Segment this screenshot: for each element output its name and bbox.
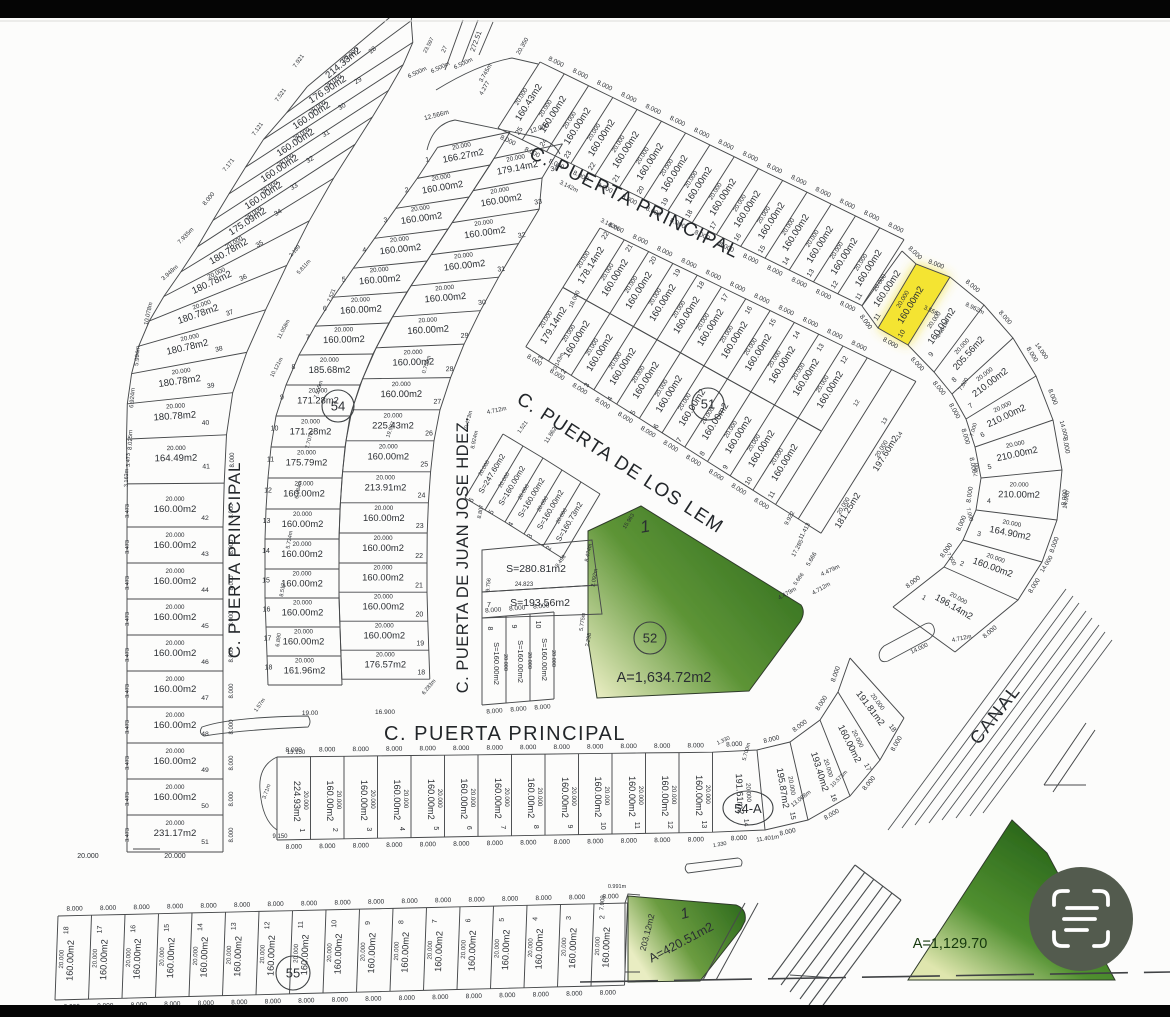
svg-text:8.000: 8.000 [229, 683, 235, 699]
svg-text:20.000: 20.000 [166, 532, 185, 539]
svg-text:20.000: 20.000 [527, 938, 535, 958]
svg-text:20.000: 20.000 [292, 943, 300, 963]
svg-text:8: 8 [292, 364, 296, 371]
svg-text:9: 9 [566, 824, 573, 828]
svg-text:9.756: 9.756 [485, 578, 492, 592]
svg-text:160.00m2: 160.00m2 [154, 576, 197, 587]
svg-text:20.000: 20.000 [164, 853, 186, 860]
svg-text:S=160.00m2: S=160.00m2 [540, 638, 549, 681]
svg-text:8.000: 8.000 [587, 838, 604, 845]
svg-text:3.473: 3.473 [126, 453, 132, 467]
svg-text:8.000: 8.000 [566, 990, 583, 997]
svg-text:5: 5 [432, 826, 439, 830]
svg-text:20.000: 20.000 [402, 789, 409, 808]
svg-text:20.000: 20.000 [469, 788, 476, 807]
svg-text:22: 22 [415, 553, 423, 560]
svg-text:20.000: 20.000 [166, 402, 186, 410]
svg-text:160.00m2: 160.00m2 [154, 792, 197, 803]
svg-text:20.000: 20.000 [393, 941, 401, 961]
svg-text:8: 8 [398, 920, 405, 924]
svg-text:20.000: 20.000 [379, 443, 398, 450]
svg-text:0.991m: 0.991m [608, 884, 627, 890]
svg-text:50: 50 [201, 803, 209, 810]
svg-text:20.000: 20.000 [58, 949, 66, 969]
svg-text:160.00m2: 160.00m2 [500, 929, 511, 970]
svg-text:42: 42 [201, 515, 209, 522]
svg-text:20.000: 20.000 [526, 652, 532, 669]
svg-text:39: 39 [207, 382, 216, 390]
svg-text:20.000: 20.000 [670, 785, 677, 804]
svg-text:8: 8 [486, 627, 493, 631]
svg-text:4: 4 [398, 827, 405, 831]
svg-text:3.473: 3.473 [125, 648, 131, 662]
svg-text:20.000: 20.000 [166, 604, 185, 611]
svg-text:20.000: 20.000 [301, 419, 320, 426]
svg-text:16: 16 [130, 925, 137, 933]
svg-text:13: 13 [231, 922, 238, 930]
svg-text:160.00m2: 160.00m2 [281, 578, 323, 589]
svg-text:20.000: 20.000 [550, 650, 556, 667]
svg-text:160.00m2: 160.00m2 [325, 780, 335, 821]
svg-text:20.000: 20.000 [369, 790, 376, 809]
svg-text:8.000: 8.000 [301, 900, 318, 907]
svg-text:7.000: 7.000 [973, 463, 980, 477]
svg-text:20.000: 20.000 [125, 947, 133, 967]
svg-text:160.00m2: 160.00m2 [627, 776, 637, 817]
svg-text:160.00m2: 160.00m2 [600, 927, 611, 968]
svg-text:47: 47 [201, 695, 209, 702]
svg-text:20.000: 20.000 [167, 445, 187, 452]
svg-text:8.000: 8.000 [486, 707, 503, 715]
svg-text:8.000: 8.000 [453, 745, 470, 752]
svg-text:8.000: 8.000 [401, 898, 418, 905]
svg-text:16: 16 [263, 607, 271, 614]
svg-text:24.823: 24.823 [515, 582, 534, 588]
svg-text:20.000: 20.000 [418, 316, 438, 324]
svg-text:160.00m2: 160.00m2 [154, 504, 197, 515]
svg-text:224.93m2: 224.93m2 [292, 781, 302, 822]
svg-text:3.473: 3.473 [125, 504, 131, 518]
svg-text:8.000: 8.000 [319, 746, 336, 753]
svg-text:20: 20 [416, 612, 424, 619]
svg-text:8.000: 8.000 [654, 837, 671, 844]
svg-text:1: 1 [298, 828, 305, 832]
svg-text:15: 15 [788, 811, 796, 820]
svg-text:8.000: 8.000 [499, 992, 516, 999]
svg-text:8.000: 8.000 [229, 755, 235, 771]
svg-text:11: 11 [633, 822, 640, 829]
svg-text:20.000: 20.000 [166, 496, 185, 503]
svg-text:160.00m2: 160.00m2 [459, 778, 469, 819]
svg-text:20.000: 20.000 [225, 945, 233, 965]
svg-text:43: 43 [201, 551, 209, 558]
svg-text:20.000: 20.000 [403, 349, 423, 357]
svg-text:160.00m2: 160.00m2 [283, 636, 325, 647]
svg-text:4: 4 [987, 498, 991, 505]
svg-text:2: 2 [331, 828, 338, 832]
svg-text:160.00m2: 160.00m2 [694, 775, 704, 816]
svg-text:C. PUERTA PRINCIPAL: C. PUERTA PRINCIPAL [225, 462, 244, 659]
svg-text:51: 51 [201, 839, 209, 846]
svg-text:19: 19 [416, 641, 424, 648]
svg-text:8.000: 8.000 [334, 899, 351, 906]
svg-text:8.000: 8.000 [731, 835, 748, 843]
svg-text:10: 10 [271, 426, 279, 433]
svg-text:41: 41 [202, 463, 210, 470]
svg-text:20.000: 20.000 [293, 541, 312, 548]
svg-text:3.473: 3.473 [125, 828, 131, 842]
svg-text:12: 12 [264, 488, 272, 495]
svg-text:8.000: 8.000 [533, 602, 550, 610]
svg-text:8.000: 8.000 [399, 995, 416, 1002]
svg-text:14: 14 [262, 548, 270, 555]
svg-text:17: 17 [264, 636, 272, 643]
svg-text:20.000: 20.000 [351, 296, 371, 304]
svg-text:160.00m2: 160.00m2 [363, 512, 405, 523]
svg-text:16.900: 16.900 [375, 709, 395, 716]
svg-text:13: 13 [263, 518, 271, 525]
svg-text:28: 28 [446, 366, 454, 373]
svg-text:8.000: 8.000 [267, 901, 284, 908]
svg-text:14: 14 [197, 923, 204, 931]
svg-text:8.000: 8.000 [569, 894, 586, 901]
svg-text:C. PUERTA DE JUAN JOSE HDEZ.: C. PUERTA DE JUAN JOSE HDEZ. [454, 417, 472, 694]
svg-text:160.00m2: 160.00m2 [64, 940, 75, 981]
svg-text:8.000: 8.000 [386, 842, 403, 849]
svg-text:8.000: 8.000 [353, 842, 370, 849]
svg-text:8.000: 8.000 [520, 839, 537, 846]
svg-text:4: 4 [532, 917, 539, 921]
svg-text:20.000: 20.000 [603, 786, 610, 805]
svg-text:160.00m2: 160.00m2 [282, 518, 324, 529]
svg-text:8.000: 8.000 [534, 703, 551, 711]
svg-text:160.00m2: 160.00m2 [154, 540, 197, 551]
svg-text:21: 21 [415, 583, 423, 590]
svg-text:20.000: 20.000 [460, 939, 468, 959]
svg-text:20.000: 20.000 [594, 936, 602, 956]
svg-text:8.000: 8.000 [509, 604, 526, 612]
svg-text:8.000: 8.000 [353, 746, 370, 753]
svg-text:26: 26 [425, 430, 433, 437]
svg-text:160.00m2: 160.00m2 [359, 780, 369, 821]
svg-text:20.000: 20.000 [560, 937, 568, 957]
svg-text:160.00m2: 160.00m2 [399, 932, 410, 973]
svg-text:8.000: 8.000 [487, 840, 504, 847]
svg-text:17: 17 [97, 925, 104, 933]
svg-text:8.000: 8.000 [167, 903, 184, 910]
svg-text:9.150: 9.150 [272, 834, 288, 840]
svg-text:160.00m2: 160.00m2 [392, 779, 402, 820]
svg-text:231.17m2: 231.17m2 [154, 828, 197, 839]
svg-text:8.025m: 8.025m [128, 430, 135, 450]
svg-text:175.79m2: 175.79m2 [286, 457, 328, 468]
svg-text:160.00m2: 160.00m2 [660, 775, 670, 816]
svg-text:20.000: 20.000 [293, 511, 312, 518]
svg-text:160.00m2: 160.00m2 [154, 720, 197, 731]
svg-text:20.000: 20.000 [374, 505, 393, 512]
svg-text:20.000: 20.000 [744, 783, 752, 803]
svg-text:160.00m2: 160.00m2 [283, 488, 325, 499]
svg-text:3.473: 3.473 [125, 792, 131, 806]
svg-text:20.000: 20.000 [536, 787, 543, 806]
svg-text:20.000: 20.000 [293, 571, 312, 578]
svg-text:54: 54 [331, 399, 345, 414]
svg-text:52: 52 [643, 631, 657, 646]
svg-text:8.000: 8.000 [66, 905, 83, 912]
svg-text:24: 24 [418, 492, 426, 499]
svg-text:8.000: 8.000 [621, 838, 638, 845]
svg-text:3.473: 3.473 [125, 720, 131, 734]
svg-text:54-A: 54-A [734, 801, 762, 816]
svg-text:160.00m2: 160.00m2 [131, 938, 142, 979]
svg-text:8.000: 8.000 [468, 896, 485, 903]
svg-text:20.000: 20.000 [376, 474, 395, 481]
svg-text:33: 33 [534, 198, 543, 206]
svg-text:3.473: 3.473 [125, 684, 131, 698]
svg-text:160.00m2: 160.00m2 [567, 928, 578, 969]
svg-text:13: 13 [700, 821, 707, 829]
svg-text:8.000: 8.000 [688, 836, 705, 843]
svg-text:10: 10 [599, 822, 606, 830]
svg-text:8.000: 8.000 [600, 989, 617, 996]
svg-text:160.00m2: 160.00m2 [154, 612, 197, 623]
svg-text:20.000: 20.000 [359, 942, 367, 962]
svg-text:8.000: 8.000 [133, 904, 150, 911]
svg-text:25: 25 [420, 461, 428, 468]
svg-text:20.000: 20.000 [158, 947, 166, 967]
svg-text:51: 51 [701, 397, 715, 412]
svg-text:176.57m2: 176.57m2 [364, 659, 406, 670]
svg-text:160.00m2: 160.00m2 [407, 323, 449, 336]
svg-text:20.000: 20.000 [293, 600, 312, 607]
svg-text:160.00m2: 160.00m2 [232, 936, 243, 977]
svg-text:20.000: 20.000 [326, 943, 334, 963]
svg-text:20.000: 20.000 [376, 652, 395, 659]
svg-text:20.000: 20.000 [294, 629, 313, 636]
svg-text:10: 10 [534, 621, 541, 629]
svg-text:3.163m: 3.163m [124, 468, 131, 487]
svg-text:20.000: 20.000 [374, 565, 393, 572]
svg-text:11: 11 [267, 457, 274, 464]
svg-text:160.00m2: 160.00m2 [493, 778, 503, 819]
svg-text:5: 5 [342, 276, 347, 283]
svg-text:27: 27 [433, 399, 441, 406]
svg-text:8.000: 8.000 [298, 997, 315, 1004]
svg-text:45: 45 [201, 623, 209, 630]
svg-text:8.000: 8.000 [365, 995, 382, 1002]
svg-text:20.000: 20.000 [91, 948, 99, 968]
svg-text:161.96m2: 161.96m2 [284, 665, 326, 676]
svg-text:19.00: 19.00 [302, 710, 319, 717]
svg-text:S=160.00m2: S=160.00m2 [492, 642, 501, 685]
svg-text:8.000: 8.000 [535, 895, 552, 902]
svg-text:20.000: 20.000 [166, 784, 185, 791]
svg-text:160.00m2: 160.00m2 [165, 937, 176, 978]
svg-text:12: 12 [264, 921, 271, 929]
svg-text:8.000: 8.000 [286, 844, 303, 851]
svg-text:20.000: 20.000 [166, 820, 185, 827]
svg-text:20.000: 20.000 [166, 712, 185, 719]
svg-text:20.000: 20.000 [166, 568, 185, 575]
svg-text:160.00m2: 160.00m2 [526, 777, 536, 818]
svg-text:13.150: 13.150 [287, 750, 306, 756]
svg-text:160.00m2: 160.00m2 [362, 572, 404, 583]
svg-text:6: 6 [465, 918, 472, 922]
svg-text:8.000: 8.000 [533, 991, 550, 998]
svg-text:8.000: 8.000 [453, 841, 470, 848]
svg-text:8.000: 8.000 [554, 839, 571, 846]
svg-text:20.000: 20.000 [637, 786, 644, 805]
svg-text:20.000: 20.000 [297, 450, 316, 457]
svg-text:20.000: 20.000 [570, 787, 577, 806]
svg-text:20.000: 20.000 [259, 944, 267, 964]
svg-text:8.000: 8.000 [420, 841, 437, 848]
svg-text:8.000: 8.000 [229, 827, 235, 843]
svg-text:8.000: 8.000 [229, 791, 235, 807]
svg-text:20.000: 20.000 [374, 594, 393, 601]
svg-text:A=1,129.70: A=1,129.70 [913, 936, 988, 952]
svg-text:8.000: 8.000 [502, 896, 519, 903]
svg-text:7: 7 [432, 919, 439, 923]
svg-text:20.000: 20.000 [392, 381, 412, 388]
svg-text:23: 23 [416, 523, 424, 530]
svg-text:164.49m2: 164.49m2 [155, 453, 198, 465]
svg-text:6: 6 [465, 826, 472, 830]
svg-text:20.000: 20.000 [436, 789, 443, 808]
svg-text:20.000: 20.000 [503, 788, 510, 807]
svg-text:8.000: 8.000 [487, 745, 504, 752]
svg-text:3.473: 3.473 [125, 576, 131, 590]
svg-text:8.000: 8.000 [234, 902, 251, 909]
svg-text:15: 15 [164, 924, 171, 932]
svg-text:30: 30 [478, 299, 486, 307]
svg-text:160.00m2: 160.00m2 [533, 928, 544, 969]
svg-text:8.000: 8.000 [654, 743, 671, 750]
svg-text:160.00m2: 160.00m2 [323, 333, 365, 345]
svg-text:12: 12 [666, 821, 673, 829]
svg-text:8: 8 [532, 825, 539, 829]
svg-text:20.000: 20.000 [335, 790, 342, 809]
svg-text:20.000: 20.000 [320, 357, 340, 364]
svg-text:20.000: 20.000 [493, 938, 501, 958]
svg-text:210.00m2: 210.00m2 [998, 488, 1040, 500]
svg-text:160.00m2: 160.00m2 [299, 934, 310, 975]
svg-text:20.000: 20.000 [426, 940, 434, 960]
svg-text:46: 46 [201, 659, 209, 666]
svg-text:2: 2 [599, 915, 606, 919]
svg-text:3: 3 [365, 827, 372, 831]
svg-text:160.00m2: 160.00m2 [340, 302, 382, 315]
svg-text:8.000: 8.000 [332, 996, 349, 1003]
svg-text:55: 55 [286, 966, 300, 981]
svg-text:11: 11 [298, 921, 305, 929]
svg-text:160.00m2: 160.00m2 [282, 607, 324, 618]
svg-text:160.00m2: 160.00m2 [433, 931, 444, 972]
svg-text:A=1,634.72m2: A=1,634.72m2 [617, 670, 712, 686]
svg-text:20.000: 20.000 [1010, 481, 1030, 488]
svg-text:14: 14 [742, 819, 749, 827]
svg-text:32: 32 [517, 232, 526, 240]
svg-text:20.000: 20.000 [166, 748, 185, 755]
svg-text:20.000: 20.000 [295, 658, 314, 665]
svg-text:185.68m2: 185.68m2 [309, 364, 351, 375]
svg-text:7: 7 [499, 825, 506, 829]
svg-text:160.00m2: 160.00m2 [154, 684, 197, 695]
svg-text:20.000: 20.000 [374, 535, 393, 542]
svg-text:8.000: 8.000 [520, 744, 537, 751]
svg-text:18: 18 [417, 670, 425, 677]
svg-text:9: 9 [365, 921, 372, 925]
svg-text:8.000: 8.000 [688, 742, 705, 749]
svg-text:8.000: 8.000 [200, 902, 217, 909]
svg-text:20.000: 20.000 [384, 412, 403, 419]
svg-text:20.000: 20.000 [375, 623, 394, 630]
svg-text:3.473: 3.473 [125, 612, 131, 626]
svg-text:160.00m2: 160.00m2 [154, 648, 197, 659]
svg-text:20.000: 20.000 [166, 676, 185, 683]
svg-text:20.000: 20.000 [192, 946, 200, 966]
svg-text:18: 18 [265, 665, 273, 672]
svg-text:20.000: 20.000 [77, 853, 99, 860]
svg-text:20.000: 20.000 [704, 785, 711, 804]
svg-text:160.00m2: 160.00m2 [363, 630, 405, 641]
svg-text:8.000: 8.000 [386, 746, 403, 753]
svg-text:15: 15 [262, 578, 270, 585]
svg-text:160.00m2: 160.00m2 [362, 542, 404, 553]
svg-text:8.000: 8.000 [265, 998, 282, 1005]
svg-text:160.00m2: 160.00m2 [363, 601, 405, 612]
svg-text:8.000: 8.000 [485, 606, 502, 614]
svg-text:9: 9 [510, 625, 517, 629]
svg-text:5: 5 [499, 918, 506, 922]
svg-text:18: 18 [63, 926, 70, 934]
svg-text:31: 31 [497, 266, 506, 274]
svg-text:7: 7 [306, 334, 310, 341]
svg-text:160.00m2: 160.00m2 [367, 450, 409, 461]
svg-text:8.000: 8.000 [368, 899, 385, 906]
svg-text:160.00m2: 160.00m2 [466, 930, 477, 971]
svg-text:160.00m2: 160.00m2 [154, 756, 197, 767]
svg-text:6: 6 [323, 305, 327, 312]
svg-text:8.000: 8.000 [432, 994, 449, 1001]
svg-text:20.000: 20.000 [334, 326, 354, 334]
svg-text:8.000: 8.000 [466, 993, 483, 1000]
svg-text:10: 10 [331, 920, 338, 928]
svg-text:8.000: 8.000 [510, 705, 527, 713]
svg-text:40: 40 [201, 420, 209, 428]
svg-text:3: 3 [566, 916, 573, 920]
svg-text:8.000: 8.000 [100, 905, 117, 912]
svg-text:20.000: 20.000 [302, 791, 309, 810]
svg-text:160.00m2: 160.00m2 [265, 935, 276, 976]
svg-text:160.00m2: 160.00m2 [380, 388, 422, 399]
svg-text:S=160.00m2: S=160.00m2 [516, 640, 525, 683]
svg-text:160.00m2: 160.00m2 [366, 932, 377, 973]
svg-text:3.473: 3.473 [125, 540, 131, 554]
svg-text:160.00m2: 160.00m2 [332, 933, 343, 974]
svg-text:29: 29 [461, 333, 469, 340]
svg-text:C. PUERTA PRINCIPAL: C. PUERTA PRINCIPAL [384, 723, 626, 745]
svg-text:160.00m2: 160.00m2 [426, 779, 436, 820]
svg-text:160.00m2: 160.00m2 [198, 937, 209, 978]
svg-text:44: 44 [201, 587, 209, 594]
svg-text:8.000: 8.000 [435, 897, 452, 904]
svg-text:8.000: 8.000 [319, 843, 336, 850]
svg-text:160.00m2: 160.00m2 [98, 939, 109, 980]
svg-text:9: 9 [280, 395, 284, 402]
svg-text:213.91m2: 213.91m2 [365, 481, 407, 492]
svg-text:8.000: 8.000 [420, 745, 437, 752]
